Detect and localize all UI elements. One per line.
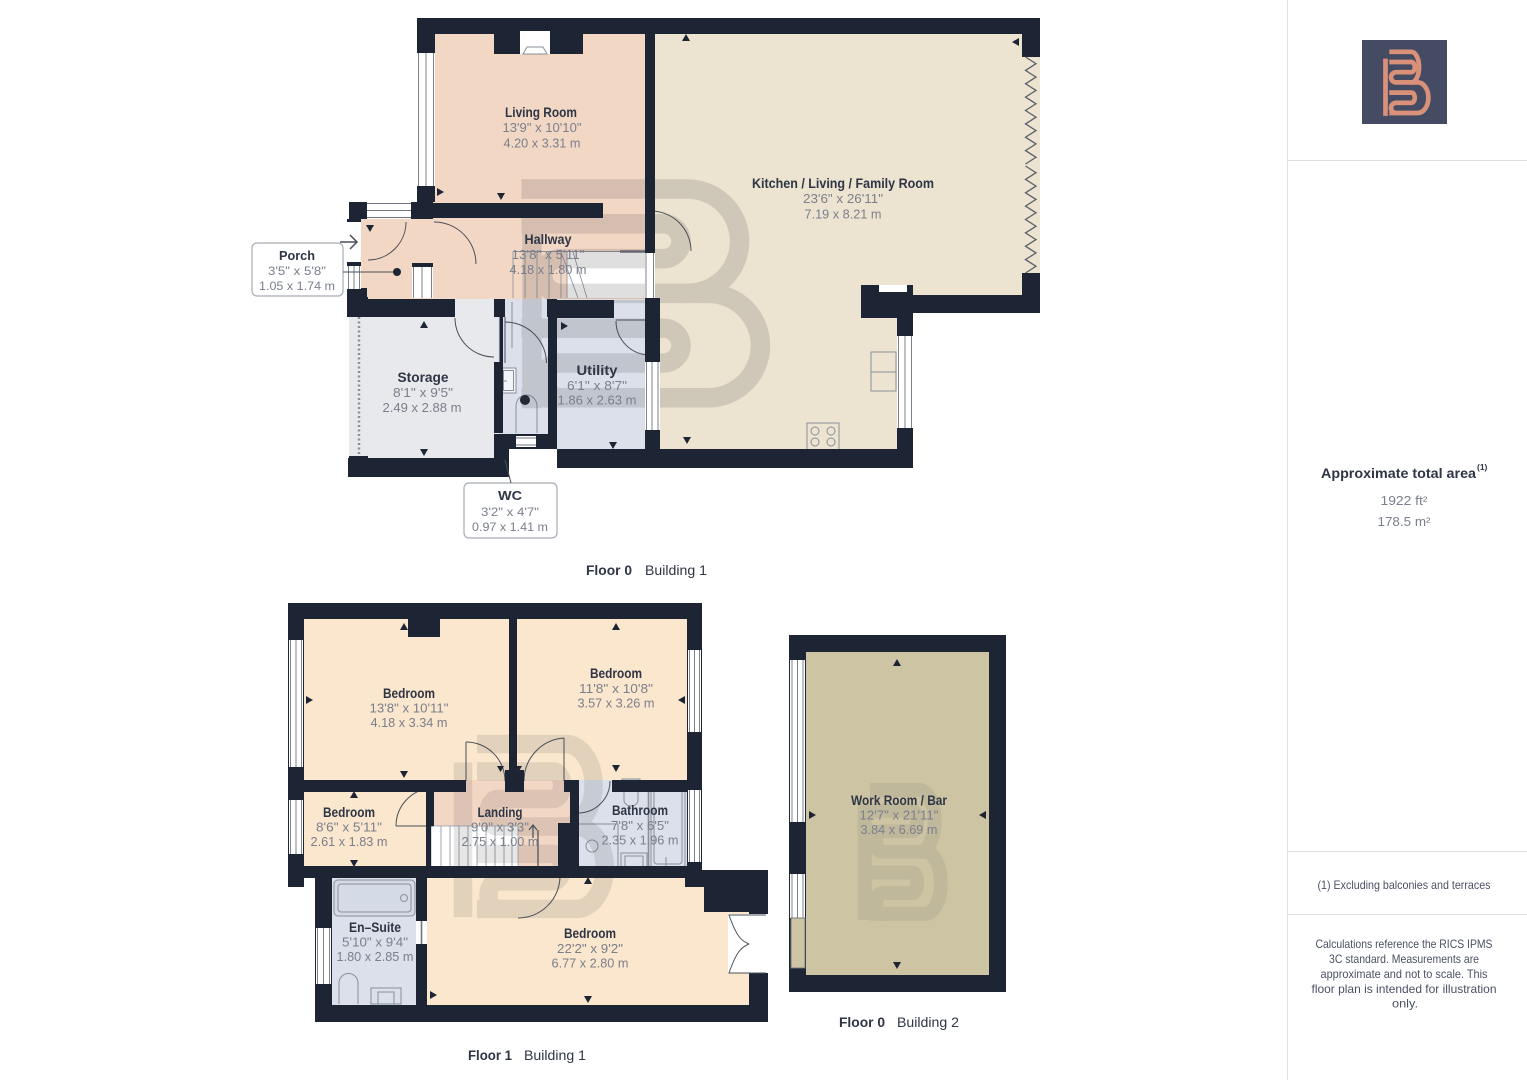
svg-text:22'2" x 9'2": 22'2" x 9'2" [557, 942, 623, 956]
svg-text:3'5" x 5'8": 3'5" x 5'8" [268, 264, 326, 278]
svg-text:En–Suite: En–Suite [349, 919, 401, 935]
svg-text:Floor 1: Floor 1 [468, 1047, 512, 1063]
svg-text:Utility: Utility [577, 362, 618, 378]
svg-text:3.57 x 3.26 m: 3.57 x 3.26 m [578, 697, 655, 711]
svg-text:Living Room: Living Room [505, 104, 577, 120]
svg-text:Building 1: Building 1 [645, 562, 707, 578]
svg-text:8'1" x 9'5": 8'1" x 9'5" [393, 386, 453, 400]
svg-text:9'0" x 3'3": 9'0" x 3'3" [471, 821, 529, 835]
svg-text:Bedroom: Bedroom [590, 665, 642, 681]
svg-text:(1): (1) [1477, 462, 1488, 472]
svg-text:Work Room / Bar: Work Room / Bar [851, 792, 947, 808]
svg-text:Kitchen / Living / Family Room: Kitchen / Living / Family Room [752, 175, 934, 191]
svg-text:7.19 x 8.21 m: 7.19 x 8.21 m [805, 208, 882, 222]
svg-text:4.20 x 3.31 m: 4.20 x 3.31 m [504, 137, 581, 151]
svg-text:Approximate total area: Approximate total area [1321, 465, 1476, 481]
svg-text:23'6" x 26'11": 23'6" x 26'11" [803, 192, 883, 206]
svg-text:only.: only. [1392, 997, 1418, 1011]
svg-text:0.97 x 1.41 m: 0.97 x 1.41 m [472, 520, 548, 534]
svg-text:1.80 x 2.85 m: 1.80 x 2.85 m [337, 950, 414, 964]
svg-text:Landing: Landing [478, 804, 523, 820]
svg-text:13'8" x 5'11": 13'8" x 5'11" [512, 248, 585, 262]
svg-text:5'10" x 9'4": 5'10" x 9'4" [342, 936, 408, 950]
svg-text:3'2" x 4'7": 3'2" x 4'7" [481, 505, 539, 519]
svg-text:3.84 x 6.69 m: 3.84 x 6.69 m [861, 823, 938, 837]
svg-text:floor plan is intended for ill: floor plan is intended for illustration [1312, 982, 1497, 996]
svg-text:Porch: Porch [279, 248, 315, 263]
svg-text:3C standard. Measurements are: 3C standard. Measurements are [1329, 952, 1479, 966]
svg-text:Hallway: Hallway [525, 231, 572, 247]
svg-text:1.05 x 1.74 m: 1.05 x 1.74 m [259, 279, 335, 293]
svg-text:12'7" x 21'11": 12'7" x 21'11" [860, 809, 939, 823]
svg-text:4.18 x 3.34 m: 4.18 x 3.34 m [371, 716, 448, 730]
svg-text:13'8" x 10'11": 13'8" x 10'11" [370, 702, 449, 716]
svg-text:Floor 0: Floor 0 [839, 1014, 885, 1030]
svg-text:2.35 x 1.96 m: 2.35 x 1.96 m [602, 834, 679, 848]
svg-text:2.49 x 2.88 m: 2.49 x 2.88 m [383, 401, 462, 415]
svg-text:7'8" x 6'5": 7'8" x 6'5" [611, 819, 669, 833]
svg-text:Bathroom: Bathroom [612, 802, 668, 818]
svg-text:8'6" x 5'11": 8'6" x 5'11" [316, 821, 382, 835]
svg-text:Bedroom: Bedroom [383, 685, 435, 701]
svg-text:2.75 x 1.00 m: 2.75 x 1.00 m [462, 835, 539, 849]
svg-text:Floor 0: Floor 0 [586, 562, 632, 578]
svg-text:1.86 x 2.63 m: 1.86 x 2.63 m [558, 394, 637, 408]
svg-text:1922 ft²: 1922 ft² [1381, 494, 1428, 508]
svg-text:178.5 m²: 178.5 m² [1378, 515, 1431, 529]
svg-text:WC: WC [498, 488, 523, 503]
svg-text:13'9" x 10'10": 13'9" x 10'10" [503, 121, 582, 135]
svg-text:Storage: Storage [398, 369, 449, 385]
svg-text:approximate and not to scale.: approximate and not to scale. This [1321, 967, 1488, 981]
svg-text:(1) Excluding balconies and te: (1) Excluding balconies and terraces [1318, 878, 1491, 892]
svg-text:Building 1: Building 1 [524, 1047, 586, 1063]
svg-text:Calculations reference the RIC: Calculations reference the RICS IPMS [1316, 937, 1493, 951]
svg-text:Bedroom: Bedroom [323, 804, 375, 820]
svg-text:11'8" x 10'8": 11'8" x 10'8" [579, 682, 653, 696]
svg-text:4.18 x 1.80 m: 4.18 x 1.80 m [510, 263, 587, 277]
svg-text:Bedroom: Bedroom [564, 925, 616, 941]
svg-text:2.61 x 1.83 m: 2.61 x 1.83 m [311, 835, 388, 849]
svg-text:6.77 x 2.80 m: 6.77 x 2.80 m [552, 957, 629, 971]
svg-text:6'1" x 8'7": 6'1" x 8'7" [567, 379, 627, 393]
svg-text:Building 2: Building 2 [897, 1014, 959, 1030]
